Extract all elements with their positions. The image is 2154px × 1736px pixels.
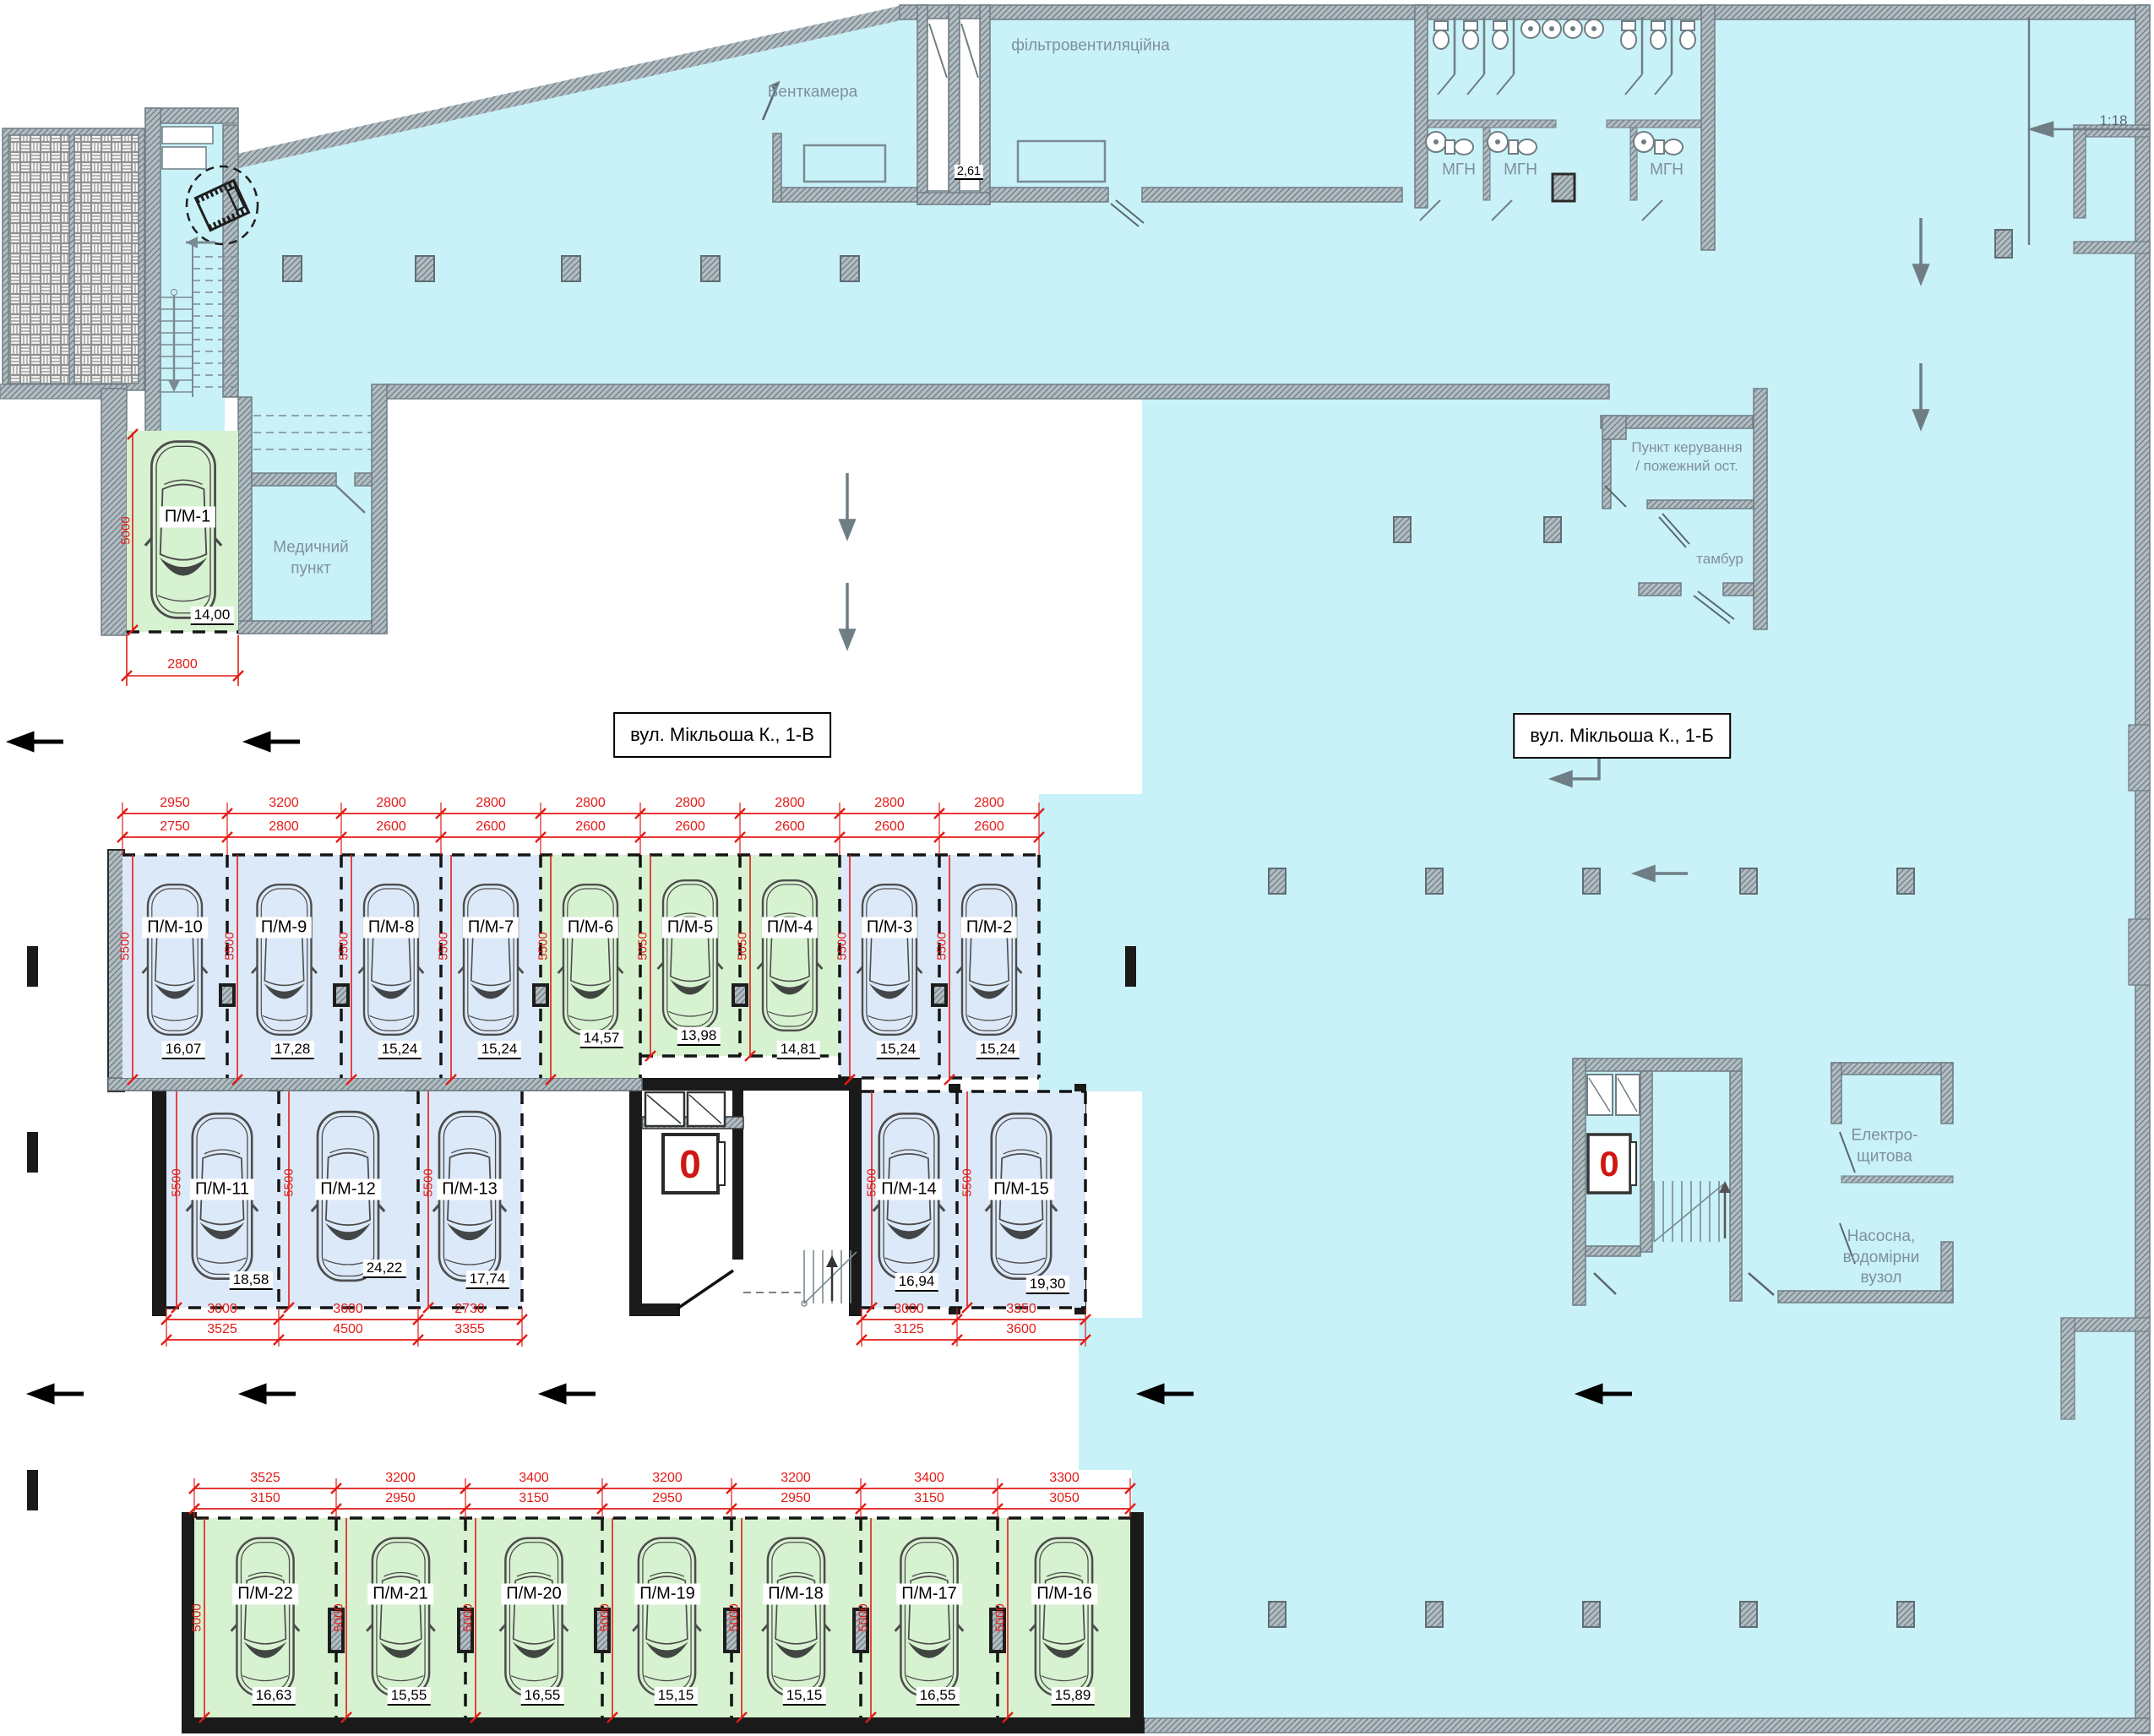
dim-outer: 3200 <box>385 1471 416 1486</box>
stall-area: 16,63 <box>253 1687 296 1706</box>
dim-outer: 3300 <box>1049 1471 1080 1486</box>
stall-depth-dim: 5500 <box>437 932 451 960</box>
stall-area: 19,30 <box>1026 1276 1069 1294</box>
dim-inner: 2950 <box>385 1491 416 1506</box>
paving-area <box>0 128 144 399</box>
stall-label: П/М-1 <box>160 507 215 528</box>
room-control-point: Пункт керування / пожежний ост. <box>1631 438 1742 476</box>
dim-inner: 2730 <box>454 1302 485 1317</box>
column <box>336 987 346 1004</box>
dim-inner: 2800 <box>269 819 299 835</box>
stall-area: 17,28 <box>271 1041 314 1059</box>
dim-outer: 2800 <box>575 796 606 811</box>
street-label-1b: вул. Мікльоша К., 1-Б <box>1513 713 1731 759</box>
room-mgn-2: МГН <box>1504 161 1537 182</box>
dim-inner: 3150 <box>250 1491 280 1506</box>
dim-inner: 2950 <box>781 1491 811 1506</box>
stall-depth-dim: 5000 <box>727 1603 742 1631</box>
dim-inner: 3000 <box>207 1302 237 1317</box>
stall-label: П/М-4 <box>762 917 818 939</box>
stall-area: 15,89 <box>1052 1687 1095 1706</box>
room-electro: Електро- щитова <box>1851 1125 1917 1167</box>
column <box>1740 868 1757 894</box>
stall-area: 16,07 <box>162 1041 205 1059</box>
column <box>1995 230 2012 258</box>
dim-inner: 2600 <box>476 819 506 835</box>
stall-depth-dim: 5000 <box>993 1603 1008 1631</box>
room-ventkamera: Венткамера <box>768 83 858 104</box>
stall-area: 14,00 <box>191 607 234 625</box>
dim-inner: 2600 <box>376 819 406 835</box>
stall-area: 15,24 <box>976 1041 1020 1059</box>
stall-depth-dim: 5500 <box>337 932 351 960</box>
stall-label: П/М-20 <box>501 1584 567 1605</box>
dim-inner: 2600 <box>675 819 705 835</box>
elevator-floor-center: 0 <box>679 1141 701 1187</box>
room-pump: Насосна, водомірни вузол <box>1843 1227 1920 1289</box>
stall-depth-dim: 5500 <box>935 932 949 960</box>
stall-label: П/М-3 <box>862 917 917 939</box>
stall-area: 15,55 <box>388 1687 431 1706</box>
column <box>701 256 720 281</box>
dim-outer: 3400 <box>519 1471 549 1486</box>
stall-area: 16,55 <box>917 1687 960 1706</box>
room-medical: Медичний пункт <box>273 537 349 579</box>
stall-area: 15,15 <box>783 1687 826 1706</box>
dim-inner: 3150 <box>519 1491 549 1506</box>
stall-label: П/М-8 <box>363 917 419 939</box>
dim-outer: 3200 <box>781 1471 811 1486</box>
stall-depth-dim: 5000 <box>119 516 133 544</box>
stall-depth-dim: 5500 <box>223 932 237 960</box>
dim-inner: 2600 <box>874 819 905 835</box>
stall-area: 14,57 <box>580 1030 623 1048</box>
column <box>222 987 232 1004</box>
parking-stall <box>640 855 740 1056</box>
stall-depth-dim: 5500 <box>835 932 850 960</box>
room-mgn-1: МГН <box>1442 161 1476 182</box>
room-mgn-3: МГН <box>1650 161 1683 182</box>
stall-label: П/М-9 <box>256 917 312 939</box>
stall-label: П/М-7 <box>463 917 519 939</box>
column <box>1426 868 1443 894</box>
stall-label: П/М-22 <box>232 1584 298 1605</box>
stall-depth-dim: 5500 <box>960 1168 975 1196</box>
stall-depth-dim: 5000 <box>461 1603 476 1631</box>
column <box>1897 1602 1914 1627</box>
stall-label: П/М-19 <box>634 1584 700 1605</box>
dim-outer: 3200 <box>269 796 299 811</box>
stall-depth-dim: 5500 <box>422 1168 436 1196</box>
stall-area: 13,98 <box>677 1027 721 1046</box>
stall-depth-dim: 5000 <box>857 1603 871 1631</box>
stall-area: 15,24 <box>378 1041 422 1059</box>
stall-label: П/М-13 <box>437 1179 503 1200</box>
dim-outer: 3355 <box>454 1322 485 1337</box>
stall-area: 16,55 <box>521 1687 564 1706</box>
column <box>536 987 546 1004</box>
stall-area: 15,24 <box>877 1041 920 1059</box>
stall-depth-dim: 5050 <box>736 932 750 960</box>
column <box>735 987 745 1004</box>
column <box>934 987 944 1004</box>
dim-inner: 2600 <box>575 819 606 835</box>
stall-depth-dim: 5000 <box>598 1603 612 1631</box>
stall-area: 18,58 <box>230 1271 273 1290</box>
stall-label: П/М-5 <box>662 917 718 939</box>
stall-label: П/М-6 <box>563 917 618 939</box>
room-filter-vent: фільтровентиляційна <box>1011 36 1170 57</box>
stall-area: 24,22 <box>363 1260 406 1278</box>
stall-label: П/М-21 <box>367 1584 433 1605</box>
ramp-slope-label: 1:18 <box>2099 112 2127 129</box>
column <box>1269 868 1286 894</box>
stall-depth-dim: 5500 <box>282 1168 296 1196</box>
dim-outer: 2800 <box>974 796 1004 811</box>
stall-depth-dim: 5000 <box>332 1603 346 1631</box>
dim-outer: 4500 <box>333 1322 363 1337</box>
column <box>1583 1602 1600 1627</box>
elevator-floor-right: 0 <box>1599 1144 1618 1184</box>
stall-label: П/М-12 <box>315 1179 381 1200</box>
dim-outer: 3600 <box>1006 1322 1036 1337</box>
stall-label: П/М-14 <box>876 1179 942 1200</box>
column <box>1897 868 1914 894</box>
dim-inner: 2750 <box>160 819 190 835</box>
core-center <box>629 1078 862 1316</box>
dim-inner: 2600 <box>974 819 1004 835</box>
parking-stall <box>740 855 840 1056</box>
column <box>562 256 580 281</box>
stall-depth-dim: 5050 <box>636 932 650 960</box>
column <box>416 256 434 281</box>
stall-label: П/М-2 <box>961 917 1017 939</box>
dim-outer: 2950 <box>160 796 190 811</box>
stall-depth-dim: 5500 <box>865 1168 879 1196</box>
column <box>1394 517 1411 542</box>
dim-outer: 3525 <box>207 1322 237 1337</box>
stall-depth-dim: 5500 <box>118 932 133 960</box>
stall-label: П/М-16 <box>1031 1584 1097 1605</box>
street-label-1v: вул. Мікльоша К., 1-В <box>613 712 831 758</box>
dim-inner: 3350 <box>1006 1302 1036 1317</box>
column <box>1426 1602 1443 1627</box>
dim-outer: 3125 <box>894 1322 924 1337</box>
stall-area: 16,94 <box>895 1273 938 1292</box>
stall-label: П/М-18 <box>763 1584 829 1605</box>
stall-label: П/М-11 <box>190 1179 254 1200</box>
room-tambur: тамбур <box>1696 550 1743 569</box>
stall-area: 15,24 <box>478 1041 521 1059</box>
column <box>283 256 302 281</box>
dim-inner: 3050 <box>1049 1491 1080 1506</box>
dim-inner: 3000 <box>894 1302 924 1317</box>
column <box>840 256 859 281</box>
dim-inner: 3150 <box>914 1491 944 1506</box>
dim-outer: 3200 <box>652 1471 683 1486</box>
column <box>1544 517 1561 542</box>
dim-outer: 2800 <box>775 796 805 811</box>
dim-inner: 2600 <box>775 819 805 835</box>
stall-label: П/М-10 <box>142 917 208 939</box>
stall-label: П/М-17 <box>896 1584 962 1605</box>
column <box>1583 868 1600 894</box>
stall-label: П/М-15 <box>988 1179 1054 1200</box>
dim-outer: 2800 <box>376 796 406 811</box>
stall-depth-dim: 5500 <box>170 1168 184 1196</box>
stall-area: 17,74 <box>466 1271 509 1289</box>
stall-width-dim: 2800 <box>167 657 198 672</box>
dim-inner: 2950 <box>652 1491 683 1506</box>
stall-depth-dim: 5500 <box>536 932 551 960</box>
shaft-dim-label: 2,61 <box>955 165 983 180</box>
dim-outer: 2800 <box>874 796 905 811</box>
dim-outer: 2800 <box>476 796 506 811</box>
stall-area: 14,81 <box>777 1041 820 1059</box>
dim-outer: 3525 <box>250 1471 280 1486</box>
dim-inner: 3600 <box>333 1302 363 1317</box>
stall-depth-dim: 5000 <box>190 1603 204 1631</box>
dim-outer: 3400 <box>914 1471 944 1486</box>
stall-area: 15,15 <box>655 1687 698 1706</box>
dim-outer: 2800 <box>675 796 705 811</box>
column <box>1740 1602 1757 1627</box>
column <box>1269 1602 1286 1627</box>
parking-floor-plan: вул. Мікльоша К., 1-В вул. Мікльоша К., … <box>0 0 2154 1736</box>
